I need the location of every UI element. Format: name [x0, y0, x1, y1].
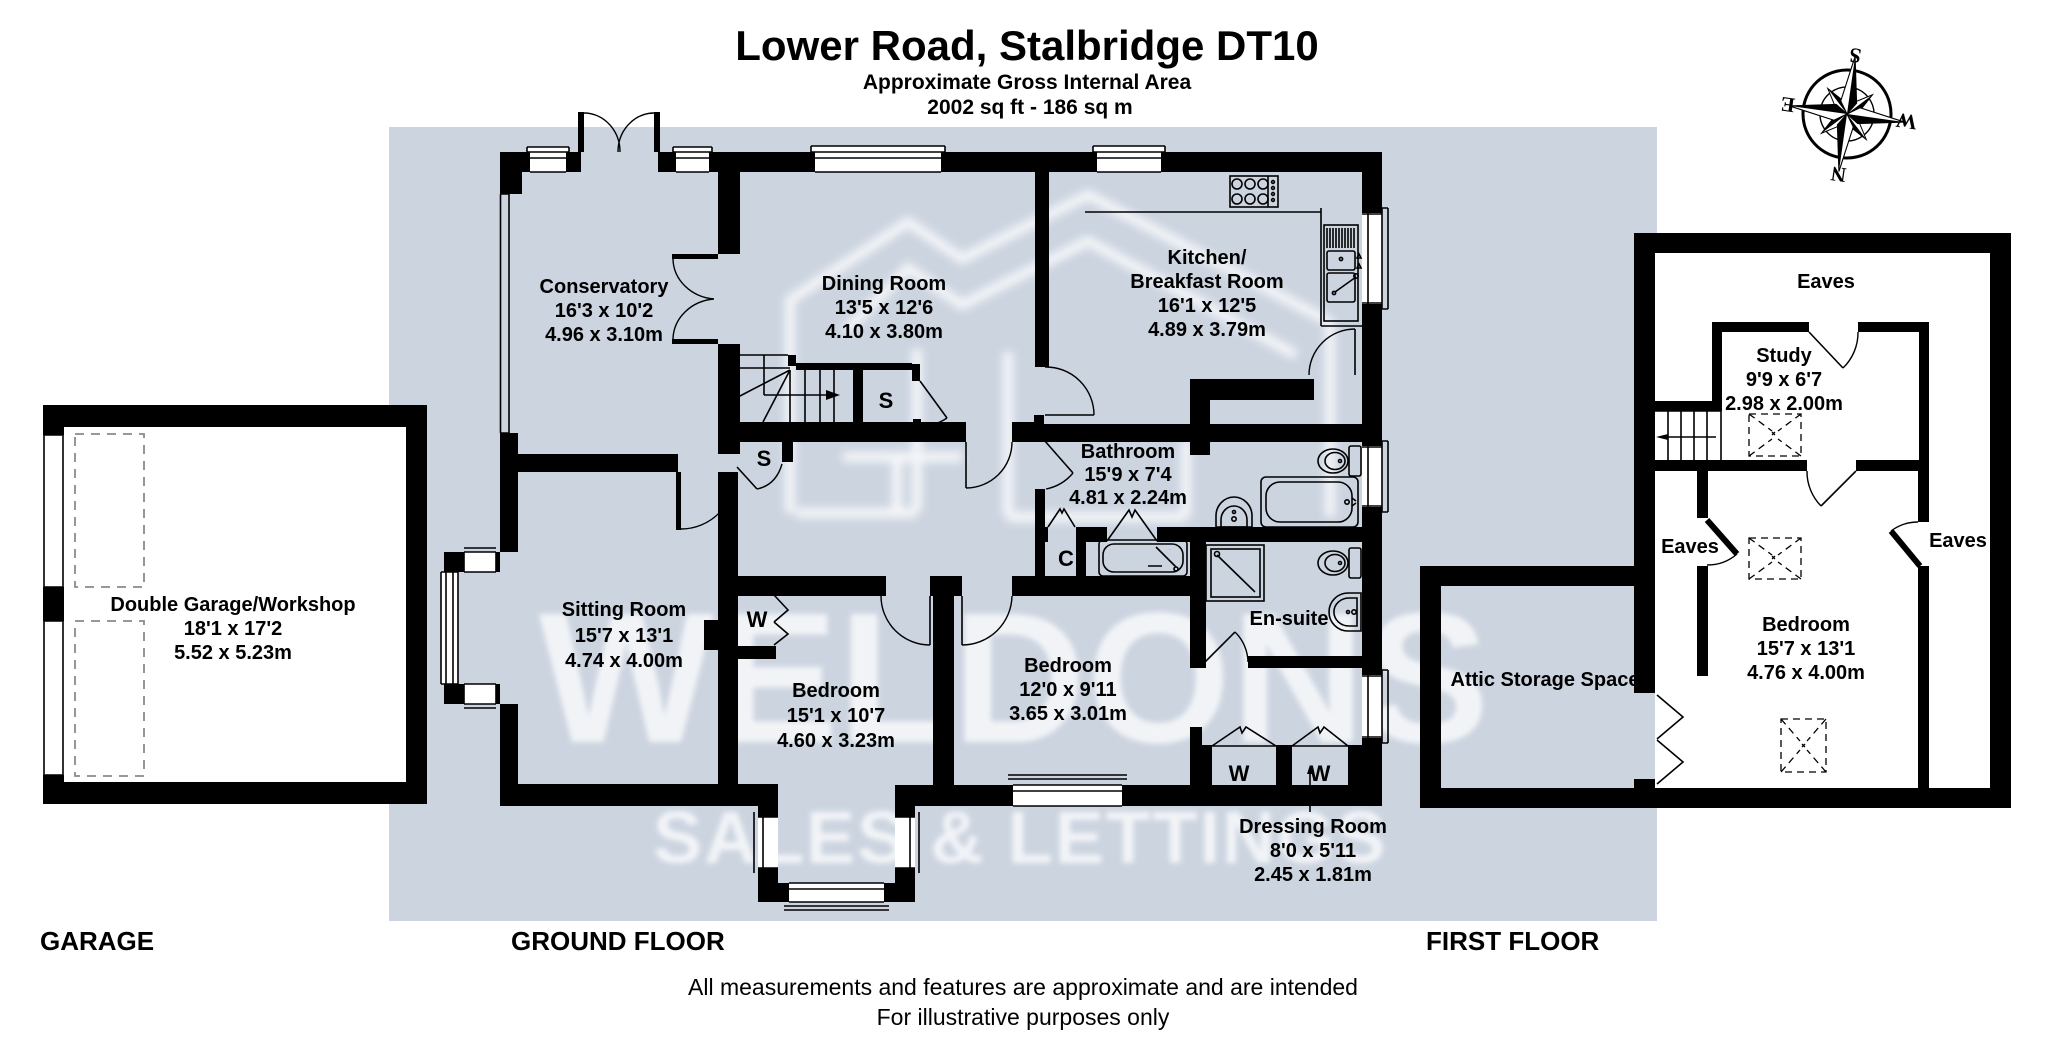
- svg-text:9'9 x 6'7: 9'9 x 6'7: [1746, 369, 1822, 391]
- svg-text:Bedroom: Bedroom: [1024, 655, 1112, 677]
- svg-text:W: W: [747, 607, 768, 632]
- svg-text:En-suite: En-suite: [1250, 608, 1329, 630]
- svg-text:4.60 x 3.23m: 4.60 x 3.23m: [777, 730, 895, 752]
- svg-text:Eaves: Eaves: [1929, 530, 1987, 552]
- svg-text:Eaves: Eaves: [1661, 536, 1719, 558]
- svg-text:Attic Storage Space: Attic Storage Space: [1451, 669, 1640, 691]
- svg-text:FIRST FLOOR: FIRST FLOOR: [1426, 926, 1600, 956]
- svg-text:Sitting Room: Sitting Room: [562, 599, 686, 621]
- svg-text:Bathroom: Bathroom: [1081, 441, 1175, 463]
- svg-text:Kitchen/: Kitchen/: [1168, 247, 1247, 269]
- svg-text:All measurements and features: All measurements and features are approx…: [688, 974, 1358, 1000]
- svg-text:Eaves: Eaves: [1797, 271, 1855, 293]
- svg-text:S: S: [879, 388, 894, 413]
- svg-text:Conservatory: Conservatory: [540, 276, 670, 298]
- svg-text:15'7 x 13'1: 15'7 x 13'1: [575, 625, 674, 647]
- svg-text:Lower Road, Stalbridge DT10: Lower Road, Stalbridge DT10: [735, 22, 1318, 69]
- svg-text:Study: Study: [1756, 345, 1812, 367]
- svg-text:2.98 x 2.00m: 2.98 x 2.00m: [1725, 393, 1843, 415]
- svg-text:4.96 x 3.10m: 4.96 x 3.10m: [545, 324, 663, 346]
- svg-text:18'1 x 17'2: 18'1 x 17'2: [184, 618, 283, 640]
- svg-text:S: S: [757, 446, 772, 471]
- svg-text:Breakfast Room: Breakfast Room: [1130, 271, 1283, 293]
- svg-text:Bedroom: Bedroom: [1762, 614, 1850, 636]
- svg-text:4.81 x 2.24m: 4.81 x 2.24m: [1069, 487, 1187, 509]
- svg-text:13'5 x 12'6: 13'5 x 12'6: [835, 297, 934, 319]
- svg-text:GARAGE: GARAGE: [40, 926, 154, 956]
- svg-text:W: W: [1894, 108, 1918, 135]
- svg-text:4.89 x 3.79m: 4.89 x 3.79m: [1148, 319, 1266, 341]
- svg-text:Double Garage/Workshop: Double Garage/Workshop: [110, 594, 355, 616]
- svg-text:5.52 x 5.23m: 5.52 x 5.23m: [174, 642, 292, 664]
- svg-text:Bedroom: Bedroom: [792, 680, 880, 702]
- svg-text:8'0 x 5'11: 8'0 x 5'11: [1270, 840, 1356, 862]
- svg-text:Approximate Gross Internal Are: Approximate Gross Internal Area: [863, 71, 1192, 94]
- svg-text:For illustrative purposes only: For illustrative purposes only: [877, 1004, 1170, 1030]
- svg-text:W: W: [1229, 761, 1250, 786]
- svg-text:2002 sq ft - 186 sq m: 2002 sq ft - 186 sq m: [927, 96, 1132, 119]
- svg-text:C: C: [1058, 546, 1074, 571]
- svg-text:15'9 x 7'4: 15'9 x 7'4: [1084, 464, 1172, 486]
- svg-text:GROUND FLOOR: GROUND FLOOR: [511, 926, 725, 956]
- svg-text:15'1 x 10'7: 15'1 x 10'7: [787, 705, 886, 727]
- svg-text:4.10 x 3.80m: 4.10 x 3.80m: [825, 321, 943, 343]
- svg-text:4.76 x 4.00m: 4.76 x 4.00m: [1747, 662, 1865, 684]
- svg-text:Dressing Room: Dressing Room: [1239, 816, 1387, 838]
- svg-text:16'3 x 10'2: 16'3 x 10'2: [555, 300, 654, 322]
- svg-text:Dining Room: Dining Room: [822, 273, 946, 295]
- svg-text:3.65 x 3.01m: 3.65 x 3.01m: [1009, 703, 1127, 725]
- svg-text:12'0 x 9'11: 12'0 x 9'11: [1019, 679, 1116, 701]
- svg-text:2.45 x 1.81m: 2.45 x 1.81m: [1254, 864, 1372, 886]
- svg-text:15'7 x 13'1: 15'7 x 13'1: [1757, 638, 1856, 660]
- svg-text:16'1 x 12'5: 16'1 x 12'5: [1158, 295, 1257, 317]
- svg-text:4.74 x 4.00m: 4.74 x 4.00m: [565, 650, 683, 672]
